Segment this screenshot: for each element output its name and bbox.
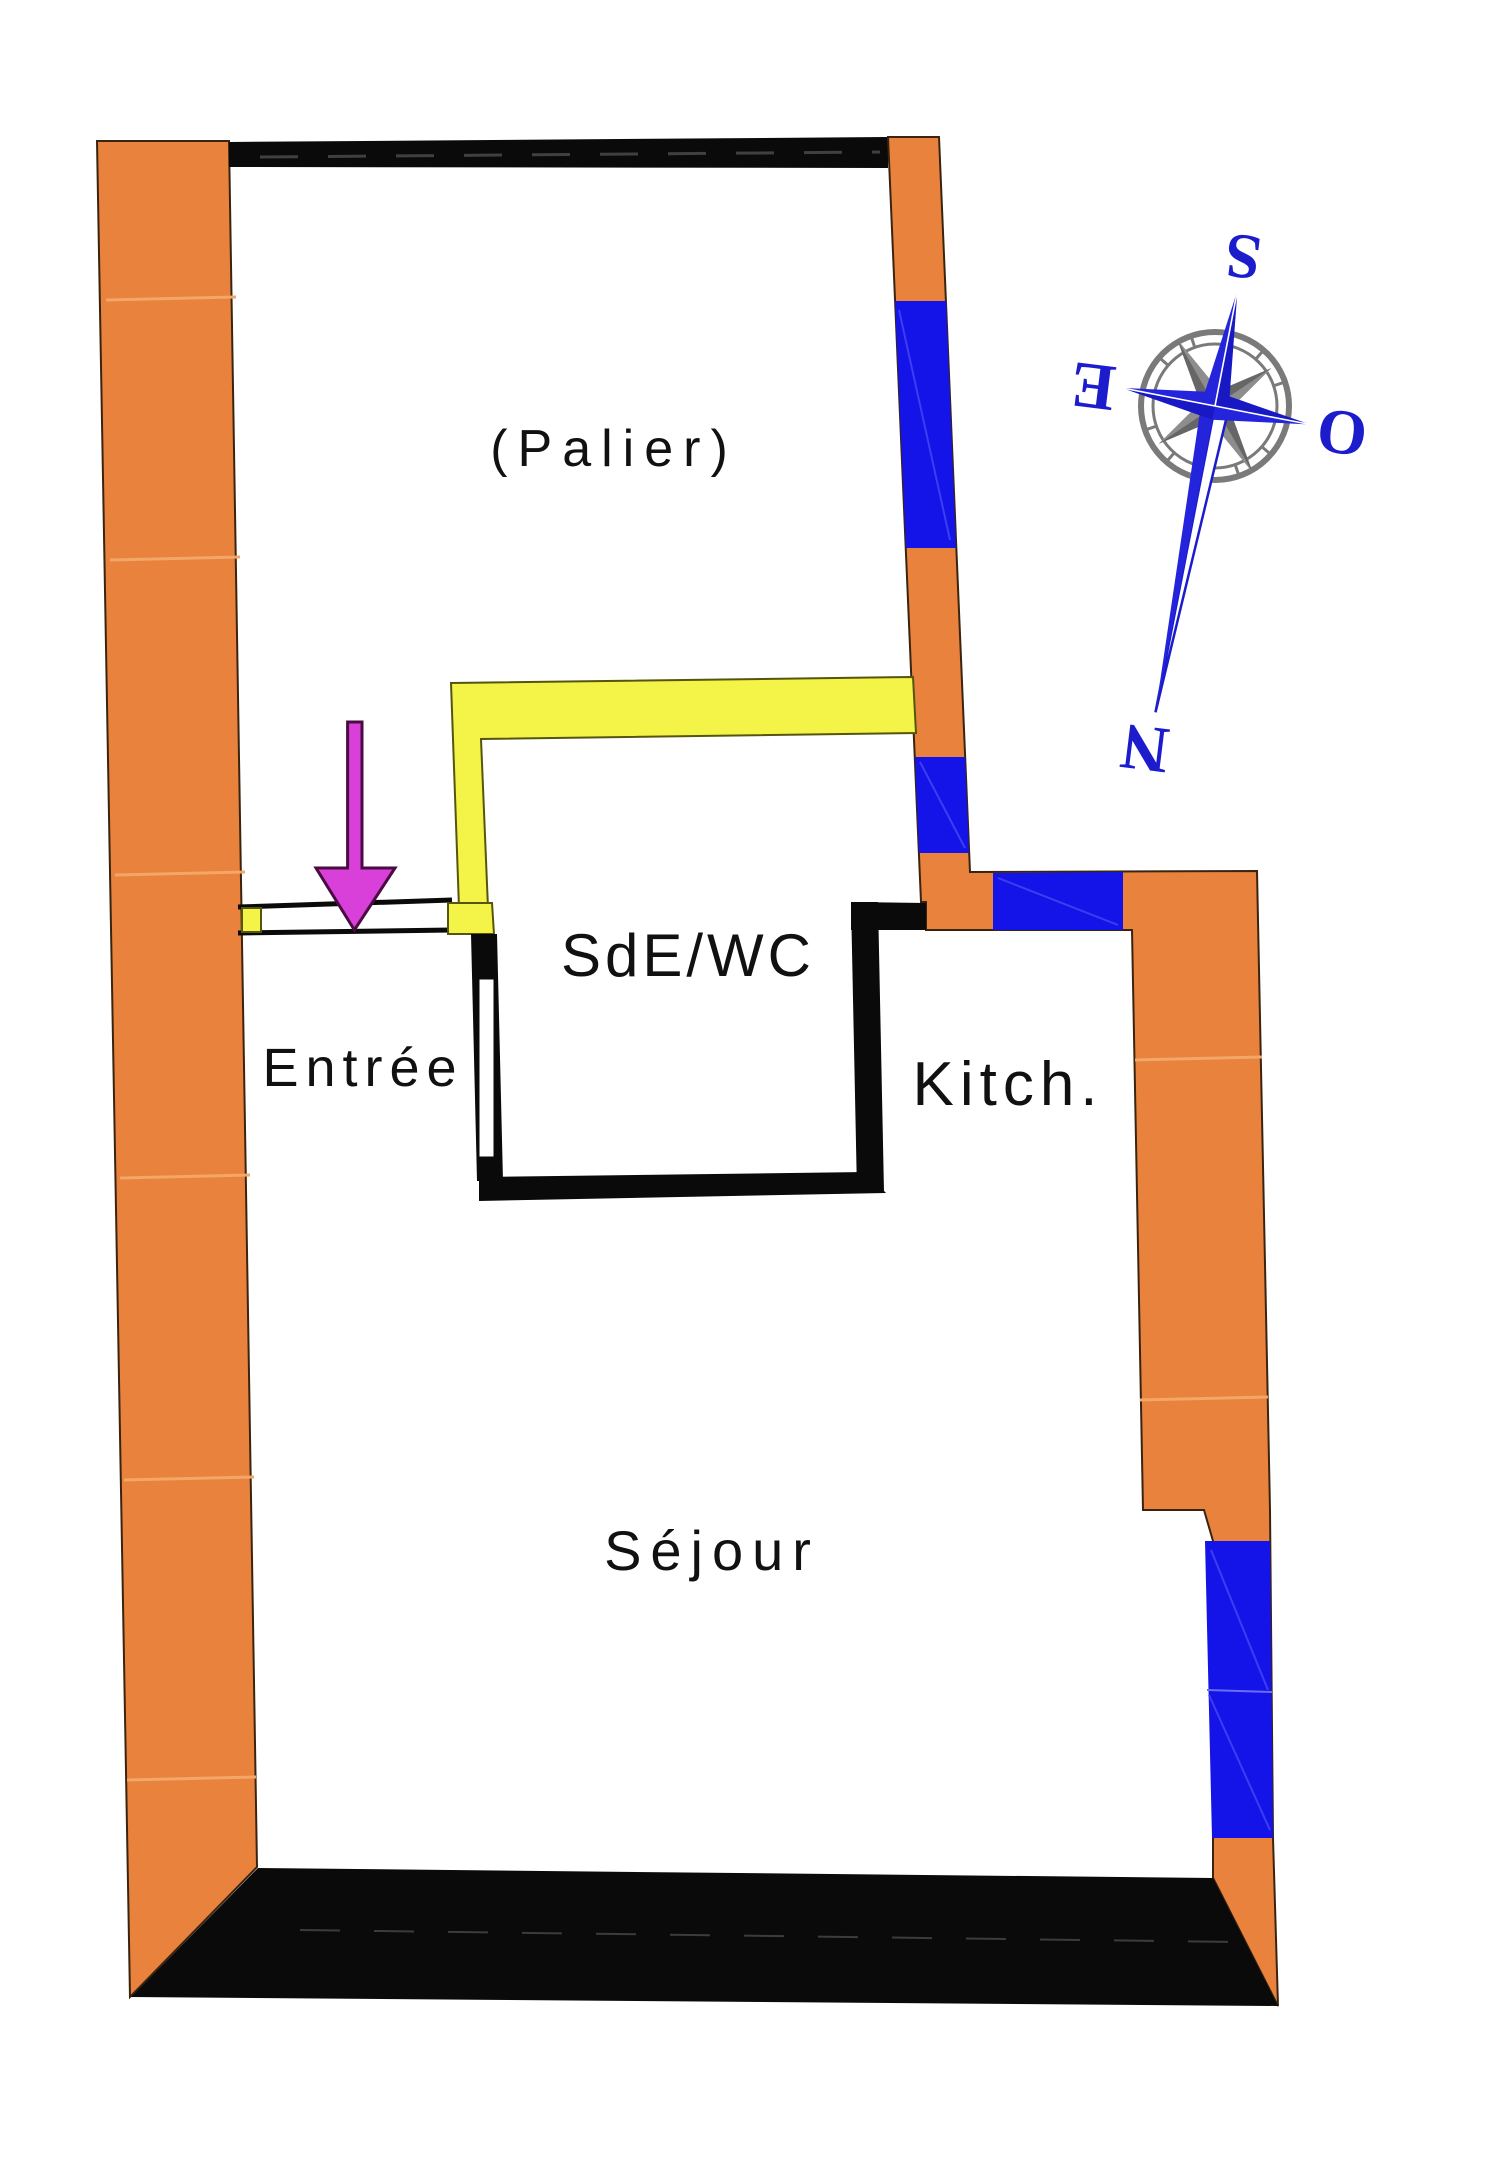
svg-text:N: N: [1117, 709, 1173, 787]
svg-text:Kitch.: Kitch.: [912, 1050, 1103, 1119]
svg-text:E: E: [1067, 347, 1120, 425]
svg-text:Séjour: Séjour: [604, 1519, 820, 1582]
svg-text:Entrée: Entrée: [262, 1038, 463, 1098]
svg-text:(Palier): (Palier): [490, 420, 738, 478]
svg-text:O: O: [1313, 395, 1371, 472]
svg-text:SdE/WC: SdE/WC: [561, 922, 815, 989]
